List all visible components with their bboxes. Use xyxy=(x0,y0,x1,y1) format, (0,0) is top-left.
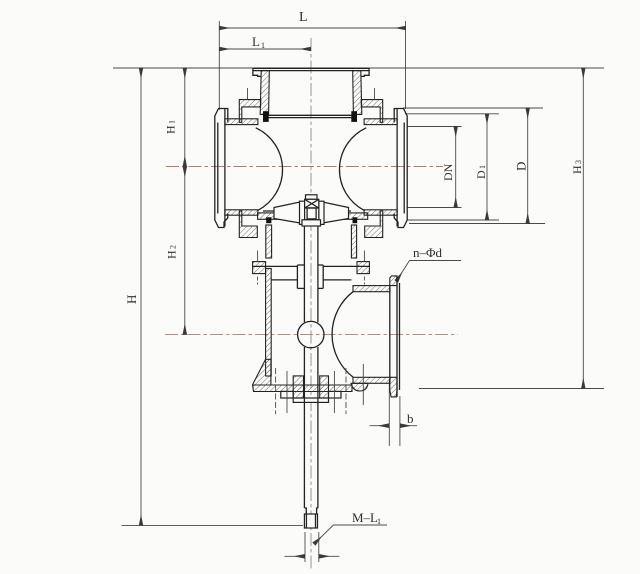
svg-text:L: L xyxy=(299,10,308,25)
svg-text:H: H xyxy=(124,295,139,304)
svg-text:M–L: M–L xyxy=(352,510,378,525)
svg-text:H: H xyxy=(165,250,179,259)
svg-text:D: D xyxy=(514,162,529,171)
svg-text:3: 3 xyxy=(574,160,583,164)
svg-text:H: H xyxy=(164,125,178,134)
svg-text:1: 1 xyxy=(261,41,265,50)
svg-text:n–Φd: n–Φd xyxy=(413,245,443,260)
svg-text:1: 1 xyxy=(168,120,177,124)
svg-text:H: H xyxy=(570,165,584,174)
svg-text:1: 1 xyxy=(377,517,381,526)
svg-text:1: 1 xyxy=(478,165,487,169)
svg-text:DN: DN xyxy=(441,163,455,181)
svg-text:D: D xyxy=(474,170,488,179)
svg-text:L: L xyxy=(252,34,260,49)
svg-text:2: 2 xyxy=(169,245,178,249)
svg-text:b: b xyxy=(407,411,414,426)
